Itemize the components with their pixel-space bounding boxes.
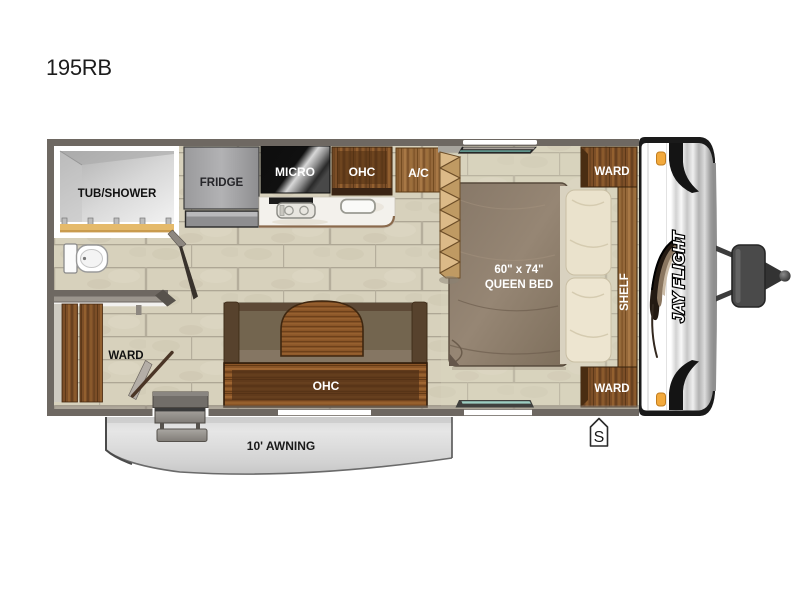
svg-text:A/C: A/C (408, 166, 429, 180)
svg-text:OHC: OHC (313, 379, 340, 393)
svg-text:S: S (594, 429, 605, 446)
svg-text:SHELF: SHELF (619, 273, 631, 311)
svg-text:WARD: WARD (594, 166, 629, 178)
svg-text:10' AWNING: 10' AWNING (247, 439, 315, 453)
svg-text:60" x 74": 60" x 74" (494, 264, 543, 276)
svg-text:WARD: WARD (108, 350, 143, 362)
svg-text:195RB: 195RB (46, 55, 112, 80)
svg-text:OHC: OHC (349, 165, 376, 179)
svg-text:MICRO: MICRO (275, 165, 315, 179)
svg-text:JAY FLIGHT: JAY FLIGHT (671, 230, 688, 322)
svg-text:WARD: WARD (594, 383, 629, 395)
svg-text:QUEEN BED: QUEEN BED (485, 279, 553, 291)
svg-text:FRIDGE: FRIDGE (200, 177, 244, 189)
svg-text:TUB/SHOWER: TUB/SHOWER (78, 188, 157, 200)
